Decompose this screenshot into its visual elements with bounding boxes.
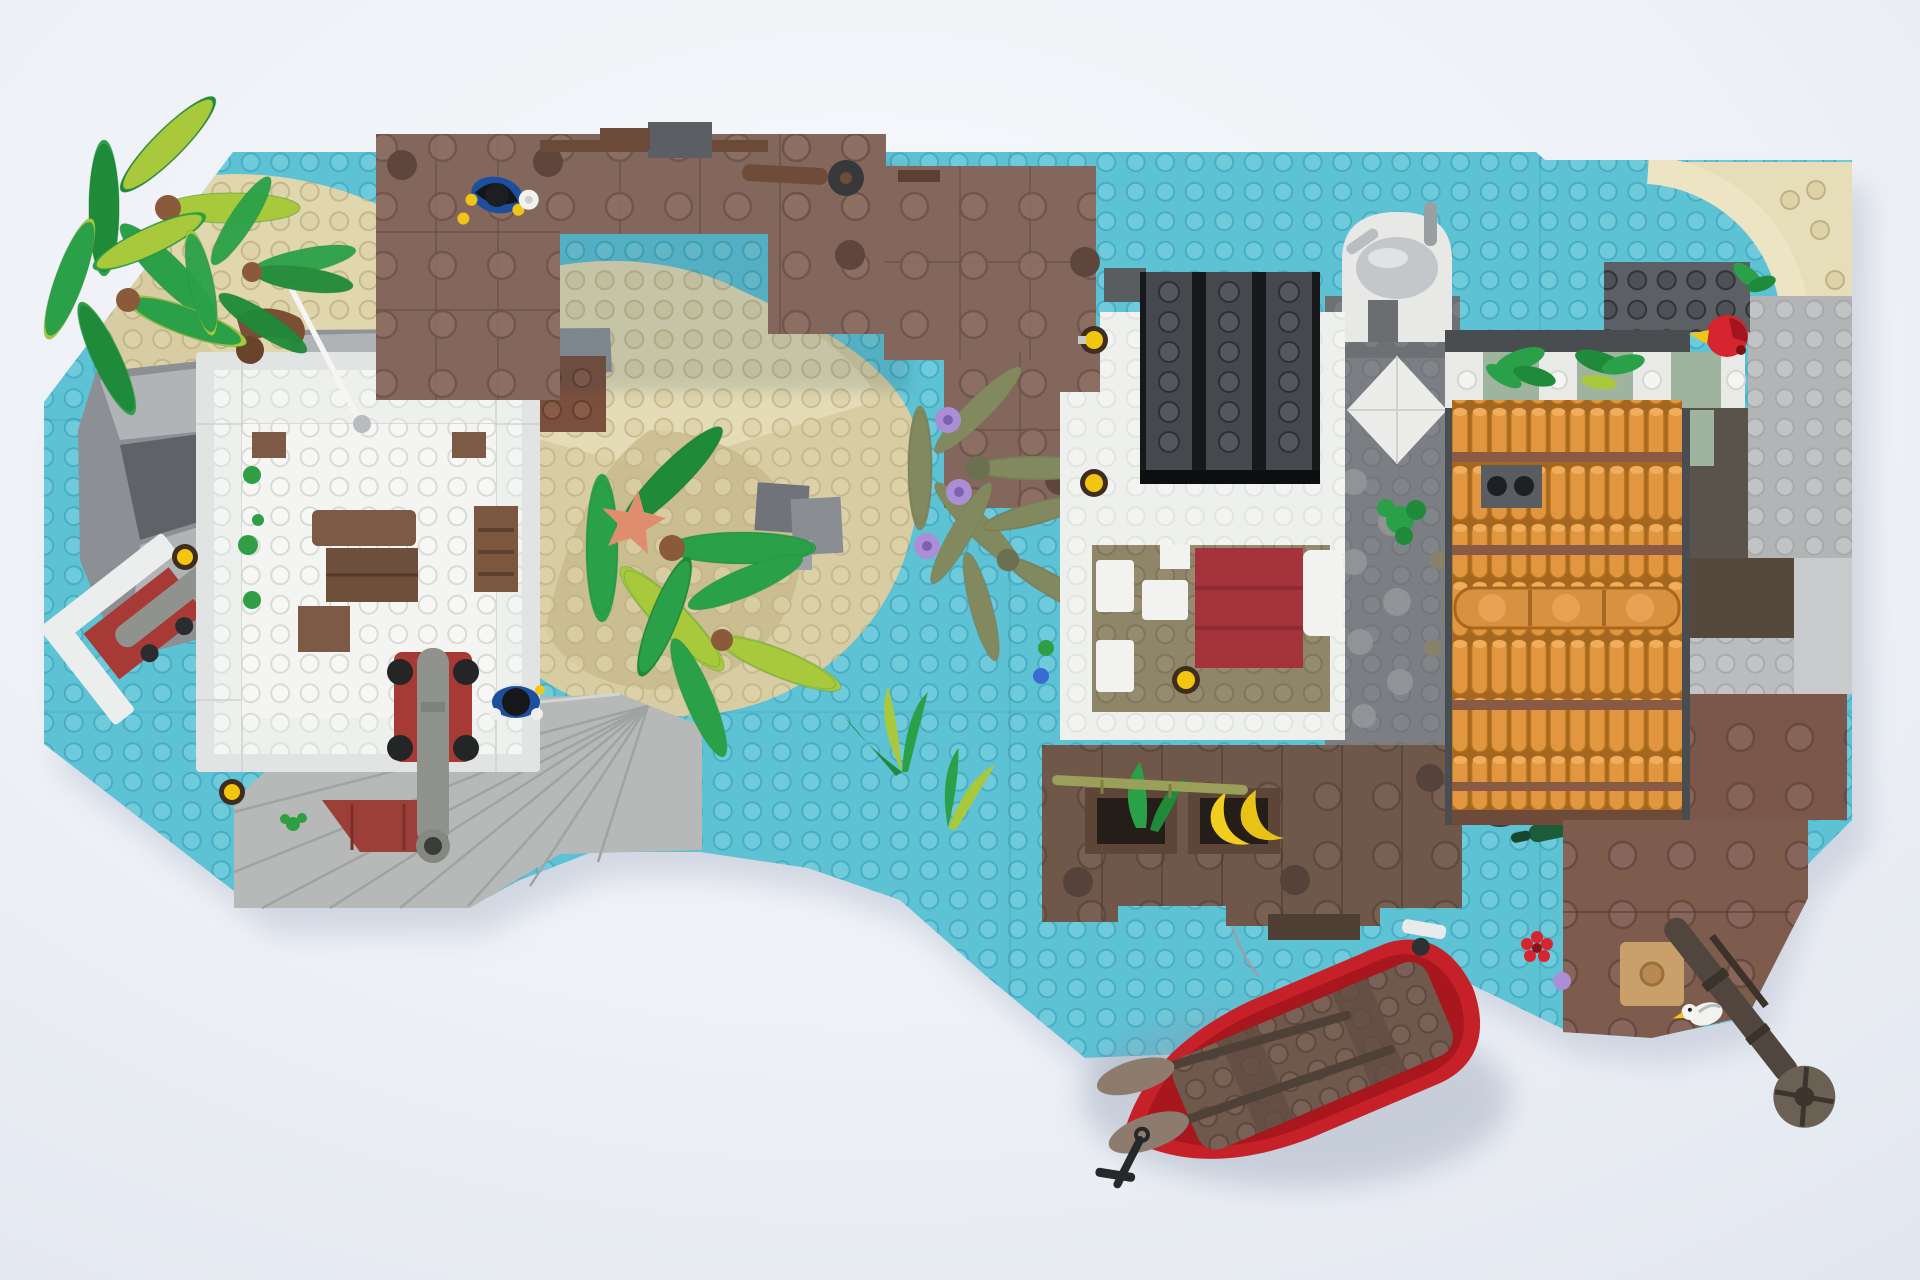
roof-ridge-bar [1455, 588, 1679, 628]
lego-render-screenshot [0, 0, 1920, 1280]
pillow [1303, 550, 1343, 636]
well-dome [1356, 237, 1438, 299]
roof-corner-piece [1104, 268, 1146, 302]
dock-edge-chest [1268, 914, 1360, 940]
cannon-barrel [417, 648, 449, 846]
sand-green-tile-3 [1671, 352, 1721, 408]
bench [312, 510, 416, 546]
bed [1195, 548, 1303, 668]
dark-slab [648, 122, 712, 158]
mast-fitting [353, 415, 371, 433]
ridge-strip-4 [1452, 782, 1682, 791]
crate [298, 606, 350, 652]
dark-brown-plate [1682, 558, 1794, 638]
chimney [1481, 465, 1542, 508]
well-opening [1368, 300, 1398, 342]
lantern [177, 549, 193, 565]
ridge-strip-2 [1452, 545, 1682, 555]
well-pipe [1424, 202, 1437, 246]
scene-canvas [0, 0, 1920, 1280]
light-gray-column [1794, 558, 1852, 694]
roof-eave [1140, 470, 1320, 484]
blue-flower [1033, 668, 1049, 684]
well [1342, 202, 1452, 342]
ridge-strip-1 [1452, 452, 1682, 462]
ladder [474, 506, 518, 592]
brown-slab [600, 128, 650, 150]
purple-flower-se [1553, 972, 1571, 990]
green-flower [1038, 640, 1054, 656]
ridge-strip-3 [1452, 700, 1682, 710]
minifig-hair [502, 688, 530, 716]
